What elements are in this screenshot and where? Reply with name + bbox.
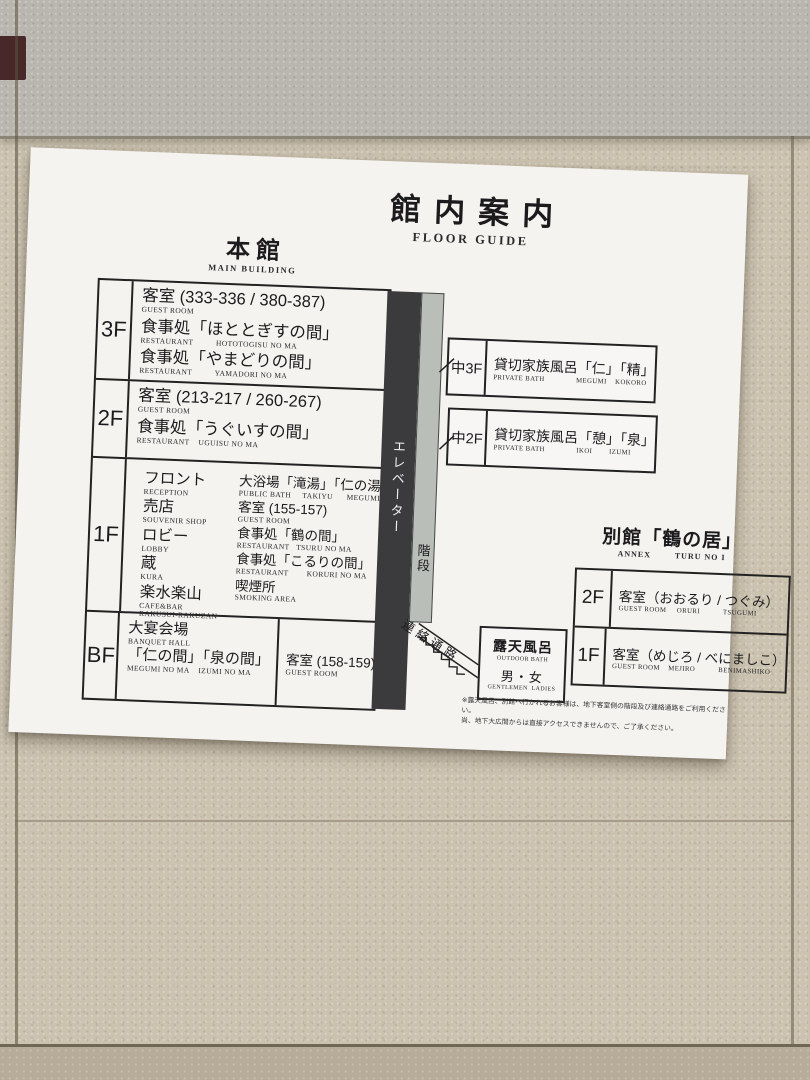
outdoor-bath-genders: 男・女 xyxy=(500,666,543,687)
floor-label-annex-2f: 2F xyxy=(575,570,613,627)
mid-3f-box: 中3F 貸切家族風呂「仁」「精」 PRIVATE BATH MEGUMI KOK… xyxy=(446,337,658,403)
list-item: フロント RECEPTION xyxy=(143,470,244,500)
wall-lower-band xyxy=(0,1047,810,1080)
main-building-en: MAIN BUILDING xyxy=(208,263,297,276)
floor-label-bf: BF xyxy=(84,612,120,699)
floor-1f-left-column: フロント RECEPTION 売店 SOUVENIR SHOP ロビー LOBB… xyxy=(139,470,245,625)
list-item: 売店 SOUVENIR SHOP xyxy=(142,498,243,528)
wall-upper-band xyxy=(0,0,810,136)
list-item: 大浴場「滝湯」「仁の湯」 PUBLIC BATH TAKIYU MEGUMI N… xyxy=(238,473,391,503)
list-item: 客室 (155-157) GUEST ROOM xyxy=(237,500,390,530)
annex-row-2f: 2F 客室（おおるり / つぐみ） GUEST ROOM ORURI TSUGU… xyxy=(575,570,789,636)
floor-1f-content: フロント RECEPTION 売店 SOUVENIR SHOP ロビー LOBB… xyxy=(121,459,383,621)
stairs-label: 階段 xyxy=(411,543,433,622)
outdoor-bath-box: 露天風呂 OUTDOOR BATH 男・女 GENTLEMEN LADIES xyxy=(477,626,568,703)
list-item: 食事処「やまどりの間」 RESTAURANT YAMADORI NO MA xyxy=(139,348,387,385)
list-item: 食事処「鶴の間」 RESTAURANT TSURU NO MA xyxy=(236,526,389,556)
tile-grout-right xyxy=(791,136,794,1080)
elevator-label: エレベーター xyxy=(379,439,408,710)
main-building-heading: 本館 MAIN BUILDING xyxy=(208,228,298,276)
annex-table: 2F 客室（おおるり / つぐみ） GUEST ROOM ORURI TSUGU… xyxy=(571,567,791,693)
list-item: 蔵 KURA xyxy=(140,555,241,585)
main-building-table: 3F 客室 (333-336 / 380-387) GUEST ROOM 食事処… xyxy=(82,278,392,711)
floor-guide-sign: 館内案内 FLOOR GUIDE 本館 MAIN BUILDING 3F 客室 … xyxy=(8,147,748,759)
floor-label-annex-1f: 1F xyxy=(573,627,607,684)
annex-heading: 別館「鶴の居」 ANNEX TURU NO I xyxy=(601,521,742,563)
title-japanese: 館内案内 xyxy=(389,183,567,235)
floor-row-1f: 1F フロント RECEPTION 売店 SOUVENIR SHOP ロビー xyxy=(87,458,383,623)
floor-label-mid2f: 中2F xyxy=(448,410,488,465)
floor-label-mid3f: 中3F xyxy=(448,339,488,394)
floor-label-2f: 2F xyxy=(93,380,130,457)
floor-1f-right-column: 大浴場「滝湯」「仁の湯」 PUBLIC BATH TAKIYU MEGUMI N… xyxy=(234,473,391,609)
floor-3f-content: 客室 (333-336 / 380-387) GUEST ROOM 食事処「ほと… xyxy=(130,281,390,389)
outdoor-bath-genders-en: GENTLEMEN LADIES xyxy=(487,684,555,693)
annex-row-1f: 1F 客室（めじろ / べにましこ） GUEST ROOM MEJIRO BEN… xyxy=(573,627,787,691)
floor-row-2f: 2F 客室 (213-217 / 260-267) GUEST ROOM 食事処… xyxy=(93,380,386,469)
list-item: ロビー LOBBY xyxy=(141,527,242,557)
floor-2f-content: 客室 (213-217 / 260-267) GUEST ROOM 食事処「うぐ… xyxy=(127,381,386,467)
outdoor-bath-en: OUTDOOR BATH xyxy=(497,656,549,665)
list-item: 食事処「こるりの間」 RESTAURANT KORURI NO MA xyxy=(235,552,388,582)
bf-guest-room-cell: 客室 (158-159) GUEST ROOM xyxy=(276,619,377,709)
main-building-ja: 本館 xyxy=(208,228,303,267)
floor-row-3f: 3F 客室 (333-336 / 380-387) GUEST ROOM 食事処… xyxy=(96,280,390,391)
mid-2f-box: 中2F 貸切家族風呂「憩」「泉」 PRIVATE BATH IKOI IZUMI xyxy=(446,407,658,473)
tile-grout-middle xyxy=(15,820,794,822)
outdoor-bath-ja: 露天風呂 xyxy=(493,635,554,657)
floor-row-bf: BF 大宴会場 BANQUET HALL 「仁の間」「泉の間」 MEGUMI N… xyxy=(84,612,377,709)
sign-title: 館内案内 FLOOR GUIDE xyxy=(389,183,554,250)
floor-label-3f: 3F xyxy=(96,280,134,379)
list-item: 喫煙所 SMOKING AREA xyxy=(234,578,387,608)
list-item: 食事処「うぐいすの間」 RESTAURANT UGUISU NO MA xyxy=(136,417,384,454)
wall-fixture xyxy=(0,36,26,80)
footnote: ※露天風呂、別館へ行かれるお客様は、地下客室側の階段及び連絡通路をご利用ください… xyxy=(460,695,732,750)
banquet-hall-cell: 大宴会場 BANQUET HALL 「仁の間」「泉の間」 MEGUMI NO M… xyxy=(117,613,280,705)
